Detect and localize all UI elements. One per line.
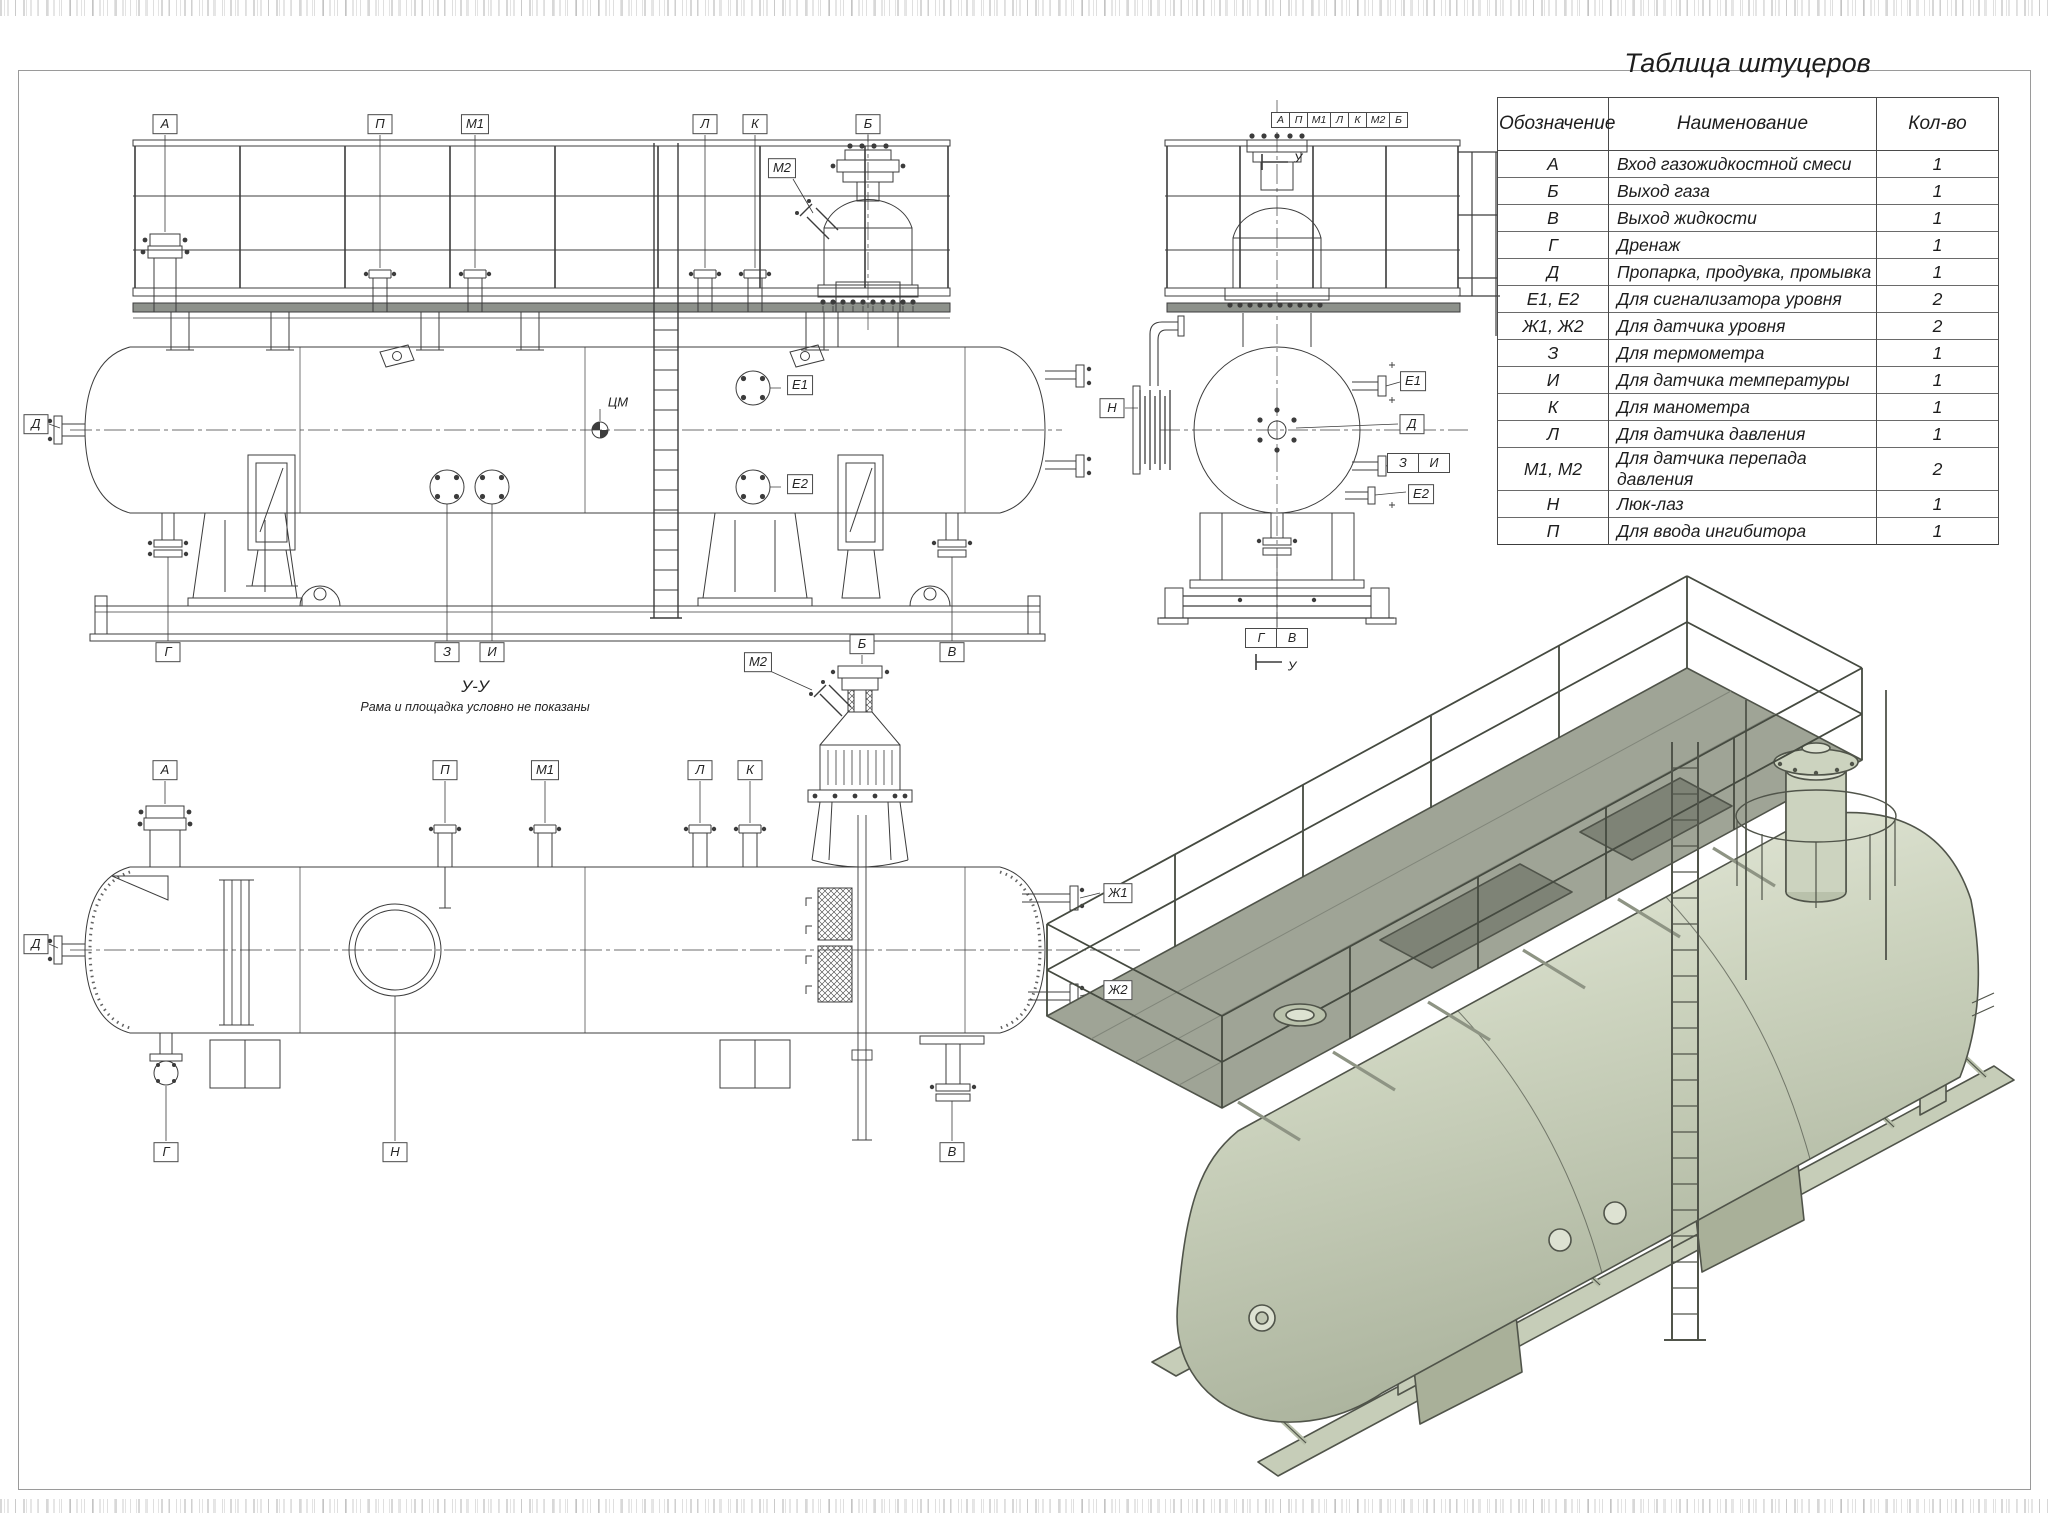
cell-qty: 2 [1877,313,1999,340]
strip-label-a: А [1271,112,1290,128]
nozzle-label-p-top: П [433,760,458,780]
cell-qty: 1 [1877,394,1999,421]
cell-qty: 1 [1877,421,1999,448]
view-arrow-bottom: У [1288,659,1296,674]
cell-name: Дренаж [1609,232,1877,259]
cell-designation: Н [1498,491,1609,518]
nozzle-label-v-end: В [1276,628,1308,648]
cell-qty: 2 [1877,286,1999,313]
cell-qty: 1 [1877,205,1999,232]
cell-designation: З [1498,340,1609,367]
nozzle-label-zh2-top: Ж2 [1103,980,1132,1000]
end-view-nozzle-strip: А П М1 Л К М2 Б [1272,112,1408,128]
cell-qty: 1 [1877,232,1999,259]
cell-name: Для датчика температуры [1609,367,1877,394]
table-row: БВыход газа1 [1498,178,1999,205]
nozzle-label-gv-end: Г В [1246,628,1308,648]
nozzle-label-e2-side: Е2 [787,474,813,494]
nozzle-label-v-top: В [940,1142,965,1162]
table-row: КДля манометра1 [1498,394,1999,421]
nozzle-label-m2-side: М2 [768,158,796,178]
nozzle-label-g-side: Г [156,642,181,662]
table-row: ПДля ввода ингибитора1 [1498,518,1999,545]
table-row: М1, М2Для датчика перепада давления2 [1498,448,1999,491]
strip-label-m2: М2 [1366,112,1390,128]
table-row: ГДренаж1 [1498,232,1999,259]
strip-label-p: П [1289,112,1308,128]
strip-label-l: Л [1330,112,1349,128]
table-row: ЗДля термометра1 [1498,340,1999,367]
cell-qty: 1 [1877,367,1999,394]
cell-name: Для датчика давления [1609,421,1877,448]
nozzle-label-b-side: Б [856,114,881,134]
cell-name: Для сигнализатора уровня [1609,286,1877,313]
nozzle-label-m1-top: М1 [531,760,559,780]
nozzle-label-l-top: Л [688,760,713,780]
cell-name: Для манометра [1609,394,1877,421]
nozzle-label-d-side: Д [24,414,49,434]
cell-qty: 1 [1877,518,1999,545]
cell-name: Выход жидкости [1609,205,1877,232]
strip-label-m1: М1 [1307,112,1331,128]
nozzle-label-n-top: Н [383,1142,408,1162]
table-row: ЛДля датчика давления1 [1498,421,1999,448]
cell-qty: 1 [1877,151,1999,178]
cell-designation: Е1, Е2 [1498,286,1609,313]
col-header-name: Наименование [1609,98,1877,151]
nozzle-label-g-end: Г [1245,628,1277,648]
col-header-qty: Кол-во [1877,98,1999,151]
cell-designation: Ж1, Ж2 [1498,313,1609,340]
drawing-sheet: А П М1 Л К Б М2 Д Е1 Е2 Г З И В ЦМ А П М… [0,0,2048,1517]
nozzle-label-e1-end: Е1 [1400,371,1426,391]
cell-designation: Г [1498,232,1609,259]
nozzle-label-g-top: Г [154,1142,179,1162]
view-arrow-top: У [1294,151,1302,166]
cell-qty: 1 [1877,340,1999,367]
cell-name: Вход газожидкостной смеси [1609,151,1877,178]
nozzle-label-m1-side: М1 [461,114,489,134]
nozzle-label-a-top: А [153,760,178,780]
cell-name: Для датчика уровня [1609,313,1877,340]
cell-designation: А [1498,151,1609,178]
cell-designation: К [1498,394,1609,421]
cell-qty: 1 [1877,491,1999,518]
table-row: ДПропарка, продувка, промывка1 [1498,259,1999,286]
nozzle-label-e2-end: Е2 [1408,484,1434,504]
cell-name: Для датчика перепада давления [1609,448,1877,491]
table-row: АВход газожидкостной смеси1 [1498,151,1999,178]
nozzle-label-d-end: Д [1400,414,1425,434]
section-view-title: У-У [461,677,488,697]
section-view-note: Рама и площадка условно не показаны [360,700,589,714]
side-view-linework [48,132,1091,641]
cell-designation: М1, М2 [1498,448,1609,491]
strip-label-k: К [1348,112,1367,128]
nozzle-label-e1-side: Е1 [787,375,813,395]
nozzle-label-i-end: И [1418,453,1450,473]
nozzle-label-b-top: Б [850,634,875,654]
nozzle-label-z-end: З [1387,453,1419,473]
nozzle-label-zi-end: З И [1388,453,1450,473]
nozzle-table: Обозначение Наименование Кол-во АВход га… [1497,97,1999,545]
table-row: Е1, Е2Для сигнализатора уровня2 [1498,286,1999,313]
nozzle-table-section: Таблица штуцеров Обозначение Наименовани… [1497,48,1998,545]
cell-name: Для ввода ингибитора [1609,518,1877,545]
table-header-row: Обозначение Наименование Кол-во [1498,98,1999,151]
cell-designation: И [1498,367,1609,394]
nozzle-label-p-side: П [368,114,393,134]
cell-name: Пропарка, продувка, промывка [1609,259,1877,286]
nozzle-label-i-side: И [480,642,505,662]
strip-label-b: Б [1389,112,1408,128]
table-row: Ж1, Ж2Для датчика уровня2 [1498,313,1999,340]
nozzle-label-d-top: Д [24,934,49,954]
cell-designation: Л [1498,421,1609,448]
col-header-designation: Обозначение [1498,98,1609,151]
nozzle-label-k-side: К [743,114,768,134]
table-row: ИДля датчика температуры1 [1498,367,1999,394]
cell-qty: 2 [1877,448,1999,491]
nozzle-label-z-side: З [435,642,460,662]
center-of-mass-label: ЦМ [608,395,628,410]
nozzle-label-k-top: К [738,760,763,780]
nozzle-label-zh1-top: Ж1 [1103,883,1132,903]
cell-qty: 1 [1877,178,1999,205]
end-view-linework [1125,100,1500,670]
nozzle-table-title: Таблица штуцеров [1497,48,1998,79]
cell-designation: П [1498,518,1609,545]
iso-render [1047,576,2014,1476]
cell-qty: 1 [1877,259,1999,286]
cell-name: Люк-лаз [1609,491,1877,518]
top-view-linework [48,655,1140,1141]
nozzle-label-a-side: А [153,114,178,134]
cell-designation: Б [1498,178,1609,205]
nozzle-label-m2-top: М2 [744,652,772,672]
cell-name: Выход газа [1609,178,1877,205]
cell-designation: В [1498,205,1609,232]
cell-designation: Д [1498,259,1609,286]
table-row: НЛюк-лаз1 [1498,491,1999,518]
nozzle-label-v-side: В [940,642,965,662]
cell-name: Для термометра [1609,340,1877,367]
table-row: ВВыход жидкости1 [1498,205,1999,232]
nozzle-label-n-end: Н [1100,398,1125,418]
nozzle-label-l-side: Л [693,114,718,134]
